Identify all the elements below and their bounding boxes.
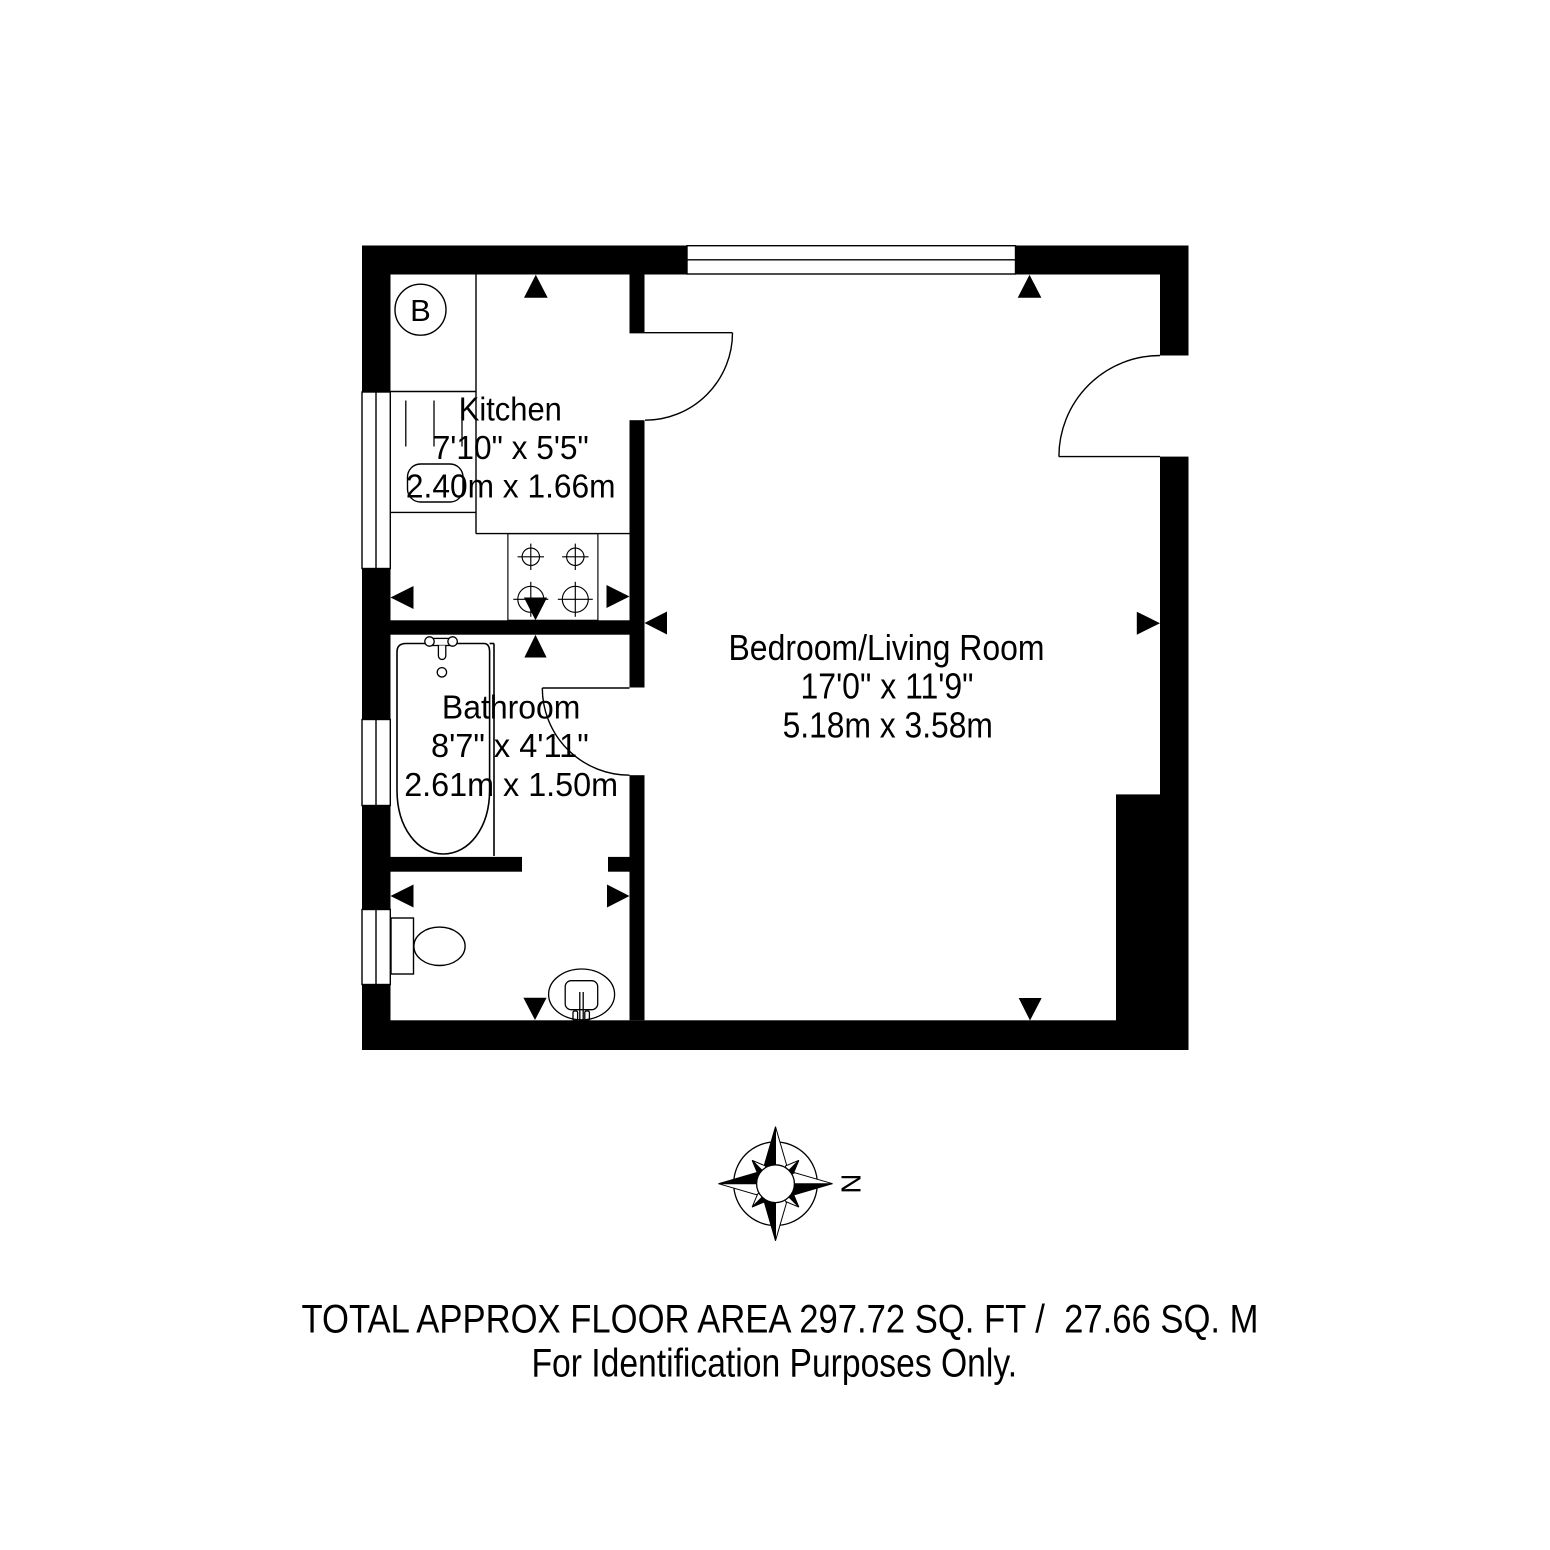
svg-text:B: B — [410, 293, 431, 328]
svg-text:7'10" x 5'5": 7'10" x 5'5" — [433, 429, 589, 466]
svg-text:Kitchen: Kitchen — [459, 390, 562, 427]
svg-text:TOTAL APPROX FLOOR AREA 297.72: TOTAL APPROX FLOOR AREA 297.72 SQ. FT / … — [302, 1297, 1259, 1341]
svg-text:2.61m x 1.50m: 2.61m x 1.50m — [404, 766, 618, 803]
svg-text:2.40m x 1.66m: 2.40m x 1.66m — [406, 467, 616, 504]
svg-text:Bedroom/Living Room: Bedroom/Living Room — [729, 627, 1045, 668]
svg-text:For Identification Purposes On: For Identification Purposes Only. — [531, 1342, 1017, 1386]
svg-text:Bathroom: Bathroom — [442, 689, 581, 726]
svg-text:N: N — [836, 1174, 867, 1194]
svg-text:8'7" x 4'11": 8'7" x 4'11" — [431, 727, 589, 764]
svg-text:5.18m x 3.58m: 5.18m x 3.58m — [783, 704, 993, 745]
svg-text:17'0" x 11'9": 17'0" x 11'9" — [801, 666, 974, 707]
